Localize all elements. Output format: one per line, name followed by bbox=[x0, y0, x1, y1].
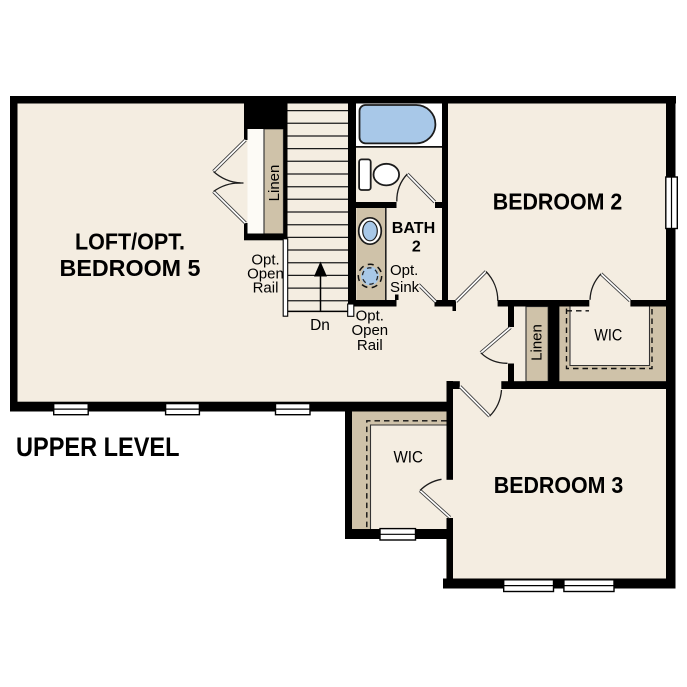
svg-text:2: 2 bbox=[412, 238, 421, 255]
svg-text:Opt.: Opt. bbox=[390, 262, 418, 279]
svg-text:BEDROOM 2: BEDROOM 2 bbox=[493, 189, 623, 215]
svg-text:LOFT/OPT.: LOFT/OPT. bbox=[75, 229, 185, 255]
svg-text:Linen: Linen bbox=[266, 165, 283, 202]
svg-text:BEDROOM 3: BEDROOM 3 bbox=[494, 472, 624, 498]
svg-text:Dn: Dn bbox=[310, 317, 330, 334]
svg-text:Rail: Rail bbox=[253, 280, 279, 297]
svg-text:BEDROOM 5: BEDROOM 5 bbox=[60, 255, 201, 281]
svg-text:BATH: BATH bbox=[392, 220, 436, 237]
svg-text:WIC: WIC bbox=[594, 326, 622, 344]
svg-text:WIC: WIC bbox=[393, 448, 423, 467]
svg-text:Rail: Rail bbox=[357, 337, 383, 354]
svg-text:UPPER LEVEL: UPPER LEVEL bbox=[16, 432, 180, 462]
svg-text:Sink: Sink bbox=[390, 279, 420, 296]
svg-text:Linen: Linen bbox=[529, 324, 546, 361]
